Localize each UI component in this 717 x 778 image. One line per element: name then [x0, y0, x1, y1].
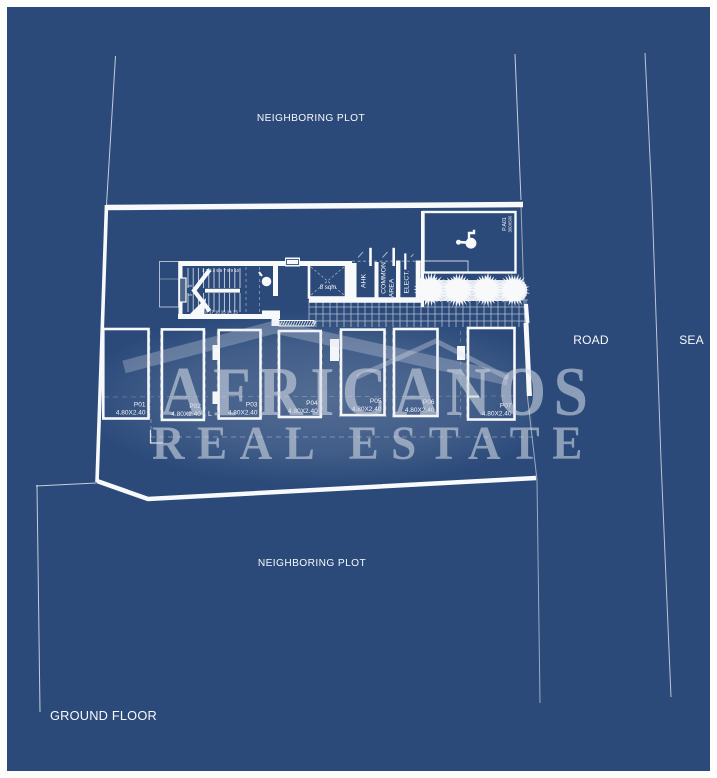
svg-text:ROAD: ROAD	[573, 333, 609, 347]
svg-text:ch: ch	[188, 284, 192, 288]
svg-text:18 17 16 15 14 13: 18 17 16 15 14 13	[203, 310, 238, 315]
svg-text:NEIGHBORING PLOT: NEIGHBORING PLOT	[257, 113, 365, 124]
svg-text:AHK: AHK	[361, 274, 368, 288]
svg-text:GROUND FLOOR: GROUND FLOOR	[50, 708, 157, 723]
svg-text:REAL ESTATE: REAL ESTATE	[152, 418, 582, 470]
svg-text:COMMON: COMMON	[381, 262, 388, 294]
svg-text:ch: ch	[188, 293, 192, 297]
svg-text:ELECT.: ELECT.	[404, 270, 411, 293]
svg-text:8 sqm: 8 sqm	[320, 284, 337, 291]
svg-text:1 2 3 4 5 6 7 8 9 10: 1 2 3 4 5 6 7 8 9 10	[202, 268, 240, 273]
svg-text:SEA: SEA	[679, 333, 704, 347]
svg-text:AREA: AREA	[389, 278, 396, 297]
svg-text:300X500: 300X500	[508, 215, 513, 232]
svg-text:NEIGHBORING PLOT: NEIGHBORING PLOT	[258, 558, 366, 569]
